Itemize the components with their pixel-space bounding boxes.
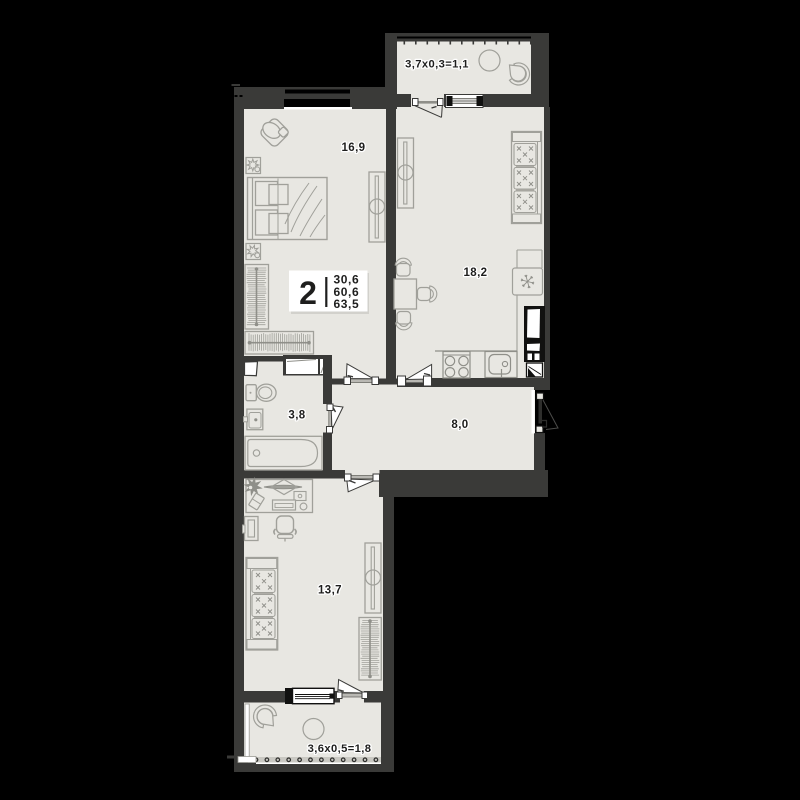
svg-text:2: 2: [299, 275, 317, 311]
svg-text:13,7: 13,7: [318, 585, 342, 597]
svg-text:63,5: 63,5: [334, 297, 360, 311]
svg-text:3,8: 3,8: [288, 410, 305, 422]
svg-text:8,0: 8,0: [451, 419, 468, 431]
svg-text:18,2: 18,2: [464, 267, 488, 279]
svg-text:16,9: 16,9: [342, 142, 366, 154]
svg-text:3,7х0,3=1,1: 3,7х0,3=1,1: [405, 59, 469, 71]
svg-text:3,6х0,5=1,8: 3,6х0,5=1,8: [308, 743, 372, 755]
